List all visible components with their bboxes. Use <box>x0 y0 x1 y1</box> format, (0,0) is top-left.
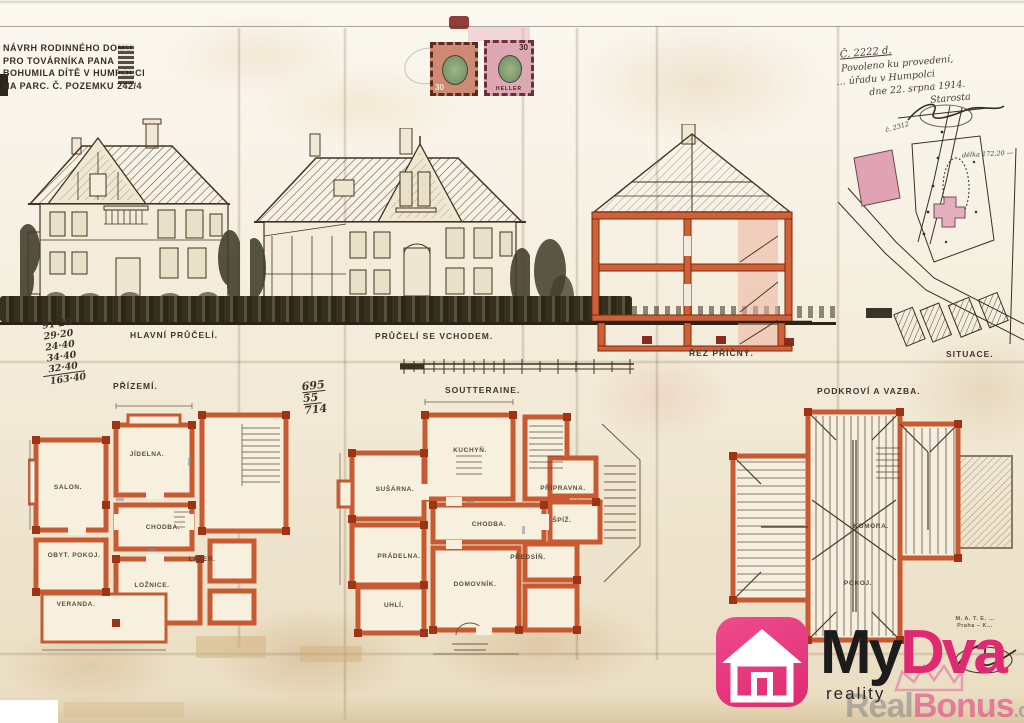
hedge-band <box>0 296 632 322</box>
red-mark <box>449 16 469 29</box>
stamp-unit: HELLER <box>487 86 531 92</box>
room-label: CHODBA. <box>472 521 507 528</box>
basement-plan <box>336 396 648 662</box>
room-label: POKOJ. <box>844 580 872 587</box>
room-label: ŠPÍŽ. <box>552 517 571 524</box>
revenue-stamp: 30 HELLER <box>484 40 534 96</box>
fold-line-top <box>0 0 1024 4</box>
site-plan-drawing <box>838 92 1024 348</box>
room-label: SALON. <box>54 484 82 491</box>
room-label: LOŽNICE. <box>134 582 169 589</box>
room-label: SUŠÁRNA. <box>376 486 415 493</box>
scanned-blueprint: NÁVRH RODINNÉHO DOMU PRO TOVÁRNÍKA PANA … <box>0 0 1024 723</box>
room-label: LÁZEŇ. <box>188 556 215 563</box>
label-cross-section: ŘEZ PŘÍČNÝ. <box>689 348 754 358</box>
watermark-suffix: .cz <box>1014 700 1024 722</box>
room-label: KOMORA. <box>853 523 889 530</box>
room-label: OBYT. POKOJ. <box>48 552 101 559</box>
wordmark-suffix: Dva <box>900 618 1005 687</box>
revenue-stamp: 30 <box>430 42 478 96</box>
registry-mark <box>118 44 134 84</box>
room-label: PŘÍPRAVNA. <box>540 485 586 492</box>
room-label: CHODBA. <box>146 524 181 531</box>
handwritten-calc-middle: 695 55 714 <box>301 379 328 416</box>
elevation-main-drawing <box>20 112 240 308</box>
room-label: JÍDELNA. <box>130 451 164 458</box>
label-ground-floor: PŘÍZEMÍ. <box>113 381 158 391</box>
scale-bar <box>398 356 638 376</box>
mydva-logo-icon <box>716 617 808 707</box>
stamp-value: 30 <box>435 83 444 92</box>
faint-stamp-mark <box>468 27 530 41</box>
label-site-plan: SITUACE. <box>946 349 994 359</box>
stamp-value: 30 <box>519 43 528 52</box>
stamp-center-oval <box>498 55 522 83</box>
watermark-part2: Bonus <box>913 687 1014 723</box>
room-label: PŘEDSÍŇ. <box>510 554 546 561</box>
paper-corner <box>0 700 58 723</box>
mydva-wordmark: MyDva <box>820 622 1005 684</box>
stamp-center-oval <box>442 55 468 85</box>
label-attic: PODKROVÍ A VAZBA. <box>817 386 921 396</box>
tape-piece <box>64 702 184 718</box>
room-label: KUCHYŇ. <box>453 447 487 454</box>
calc-sum: 714 <box>304 403 328 416</box>
handwritten-calc-left: 91·20 29·20 24·40 34·40 32·40 163·40 <box>42 316 87 387</box>
room-label: PRÁDELNA. <box>377 553 420 560</box>
room-label: VERANDA. <box>57 601 96 608</box>
room-label: DOMOVNÍK. <box>454 581 497 588</box>
logo-tagline: reality <box>826 684 885 704</box>
room-label: UHLÍ. <box>384 602 404 609</box>
label-main-facade: HLAVNÍ PRŮČELÍ. <box>130 330 218 340</box>
label-entrance-facade: PRŮČELÍ SE VCHODEM. <box>375 331 493 341</box>
elevation-entrance-drawing <box>250 128 530 324</box>
house-icon <box>716 617 808 707</box>
wordmark-prefix: My <box>820 618 900 687</box>
label-basement: SOUTTERAINE. <box>445 385 520 395</box>
cross-section-drawing <box>578 124 812 352</box>
